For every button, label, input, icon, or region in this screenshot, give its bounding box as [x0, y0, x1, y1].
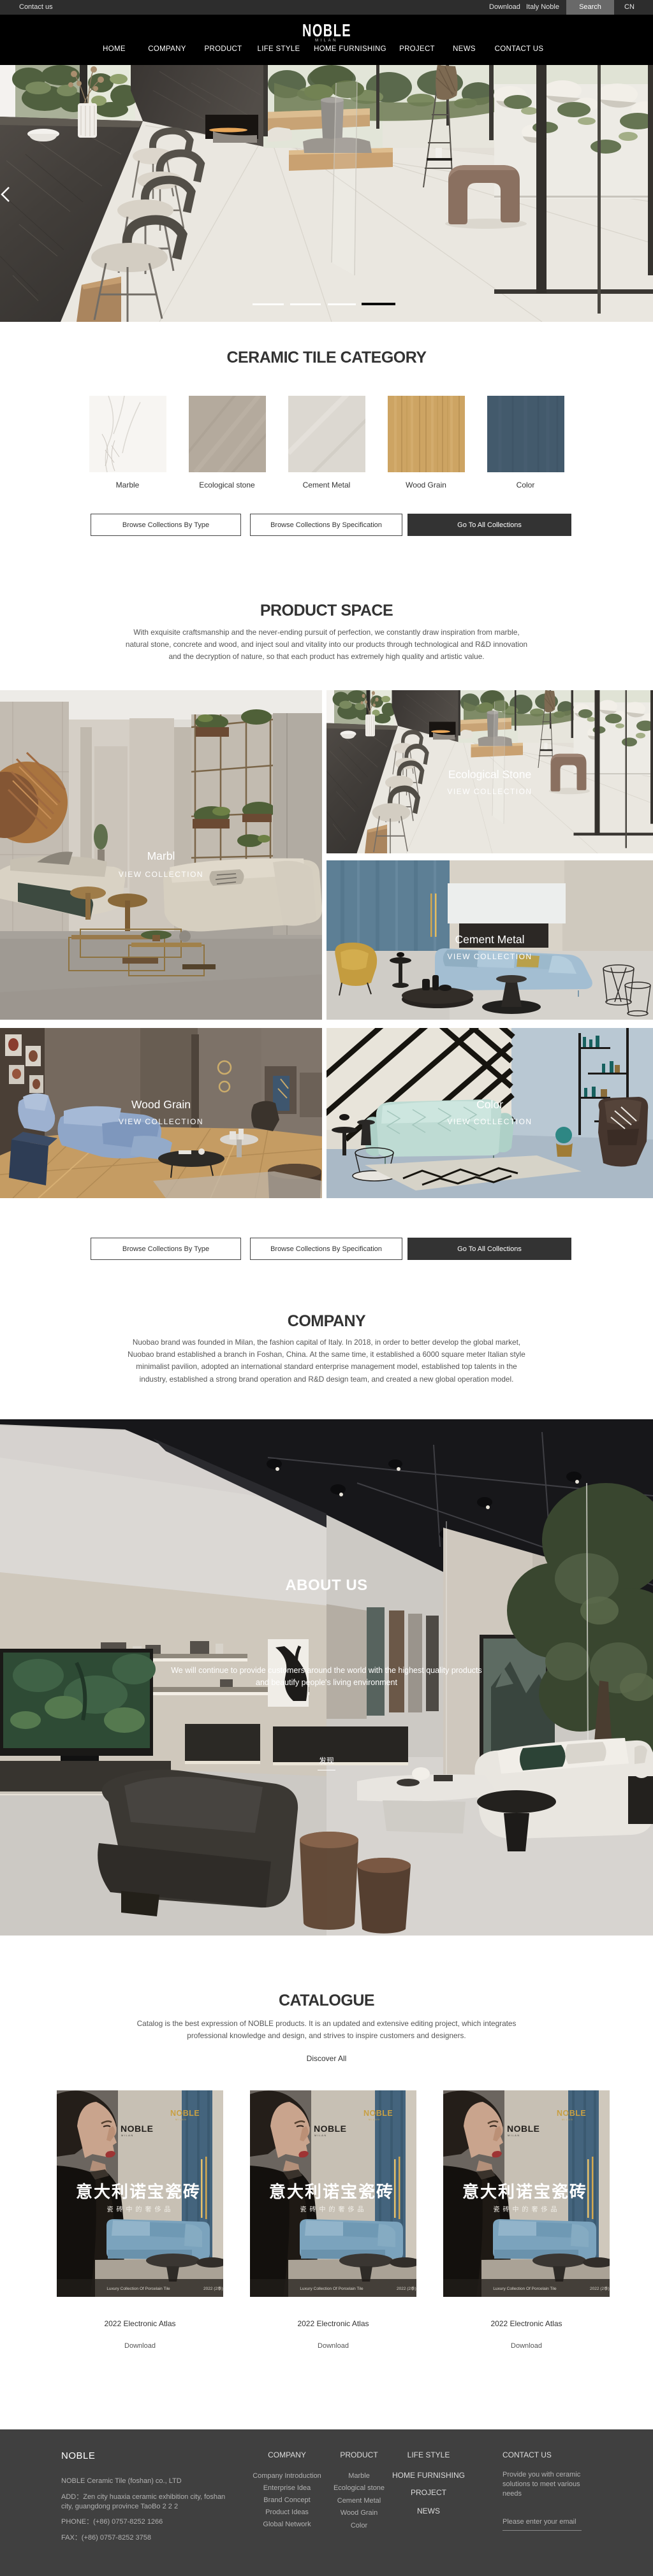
svg-text:Luxury Collection Of Porcelain: Luxury Collection Of Porcelain Tile — [106, 2287, 170, 2291]
svg-text:MILAN: MILAN — [369, 2118, 380, 2121]
svg-text:MILAN: MILAN — [175, 2118, 187, 2121]
svg-text:NOBLE: NOBLE — [557, 2109, 586, 2118]
svg-text:NOBLE: NOBLE — [170, 2109, 200, 2118]
svg-text:MILAN: MILAN — [121, 2134, 134, 2137]
svg-text:意大利诺宝瓷砖: 意大利诺宝瓷砖 — [462, 2182, 587, 2201]
svg-text:NOBLE: NOBLE — [314, 2124, 347, 2134]
svg-text:2022 (2季): 2022 (2季) — [397, 2285, 416, 2291]
svg-text:NOBLE: NOBLE — [121, 2124, 154, 2134]
svg-text:瓷砖中的奢侈品: 瓷砖中的奢侈品 — [107, 2205, 174, 2213]
svg-text:NOBLE: NOBLE — [363, 2109, 393, 2118]
svg-text:2022 (2季): 2022 (2季) — [590, 2285, 610, 2291]
svg-text:瓷砖中的奢侈品: 瓷砖中的奢侈品 — [300, 2205, 367, 2213]
svg-text:2022 (2季): 2022 (2季) — [203, 2285, 223, 2291]
svg-text:意大利诺宝瓷砖: 意大利诺宝瓷砖 — [76, 2182, 201, 2201]
svg-text:意大利诺宝瓷砖: 意大利诺宝瓷砖 — [269, 2182, 394, 2201]
svg-text:MILAN: MILAN — [314, 2134, 327, 2137]
svg-text:MILAN: MILAN — [562, 2118, 573, 2121]
svg-text:NOBLE: NOBLE — [507, 2124, 540, 2134]
svg-text:Luxury Collection Of Porcelain: Luxury Collection Of Porcelain Tile — [300, 2287, 363, 2291]
svg-text:Luxury Collection Of Porcelain: Luxury Collection Of Porcelain Tile — [493, 2287, 557, 2291]
svg-text:瓷砖中的奢侈品: 瓷砖中的奢侈品 — [494, 2205, 561, 2213]
svg-text:MILAN: MILAN — [508, 2134, 520, 2137]
